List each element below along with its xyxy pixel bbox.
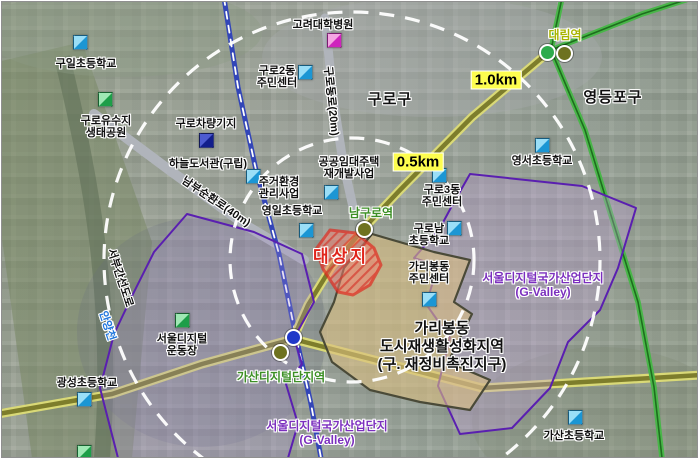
poi-marker-blue-icon [73,35,88,50]
poi-label: 구로2동주민센터 [257,65,297,89]
station-dot-line2-icon [539,44,556,61]
poi-label: 구로남초등학교 [409,223,449,247]
station-dot-line7-icon [272,344,289,361]
station-dot-line7-icon [356,221,373,238]
poi-label: 공공임대주택재개발사업 [319,156,380,180]
district-label: 구로구 [368,94,412,106]
poi-label: 고려대학병원 [293,19,354,31]
poi-label: 가산초등학교 [544,430,605,442]
poi-marker-green-icon [98,92,113,107]
station-label: 대림역 [548,29,581,41]
poi-label: 영서초등학교 [512,155,573,167]
poi-label: 광성초등학교 [57,377,118,389]
poi-marker-blue-icon [568,410,583,425]
poi-label: 하늘도서관(구립) [169,158,247,170]
poi-label: 영일초등학교 [262,205,323,217]
distance-badge: 0.5km [393,153,444,172]
station-label: 남구로역 [349,207,393,219]
zone-label-garibong-renewal: 가리봉동도시재생활성화지역(구. 재정비촉진지구) [378,320,507,374]
poi-marker-green-icon [175,313,190,328]
satellite-map-canvas: 구일초등학교구로유수지생태공원구로차량기지하늘도서관(구립)고려대학병원구로2동… [1,1,698,458]
poi-marker-navy-icon [199,133,214,148]
poi-marker-blue-icon [535,138,550,153]
zone-label-gvalley-bottom: 서울디지털국가산업단지(G-Valley) [266,419,387,447]
poi-marker-green-icon [77,445,92,458]
poi-label: 서울디지털운동장 [157,333,208,357]
poi-label: 구로유수지생태공원 [81,115,132,139]
poi-marker-blue-icon [77,392,92,407]
poi-label: 가리봉동주민센터 [409,261,449,285]
poi-marker-blue-icon [447,221,462,236]
zone-label-gvalley-right: 서울디지털국가산업단지(G-Valley) [482,271,603,299]
poi-marker-blue-icon [298,65,313,80]
station-dot-line1-icon [285,329,302,346]
poi-label: 구일초등학교 [56,58,117,70]
district-label: 영등포구 [583,92,642,104]
poi-marker-magenta-icon [327,33,342,48]
map-screenshot: { "colors": { "marker_blue_light":"#9ade… [0,0,699,465]
station-label: 가산디지털단지역 [237,371,325,383]
poi-marker-blue-icon [422,292,437,307]
poi-label: 구로3동주민센터 [422,184,462,208]
distance-badge: 1.0km [471,71,522,90]
poi-marker-blue-icon [299,223,314,238]
northwest-patch [2,2,262,77]
station-dot-line7-icon [556,45,573,62]
poi-label: 구로차량기지 [176,118,237,130]
target-site-label: 대상지 [313,251,369,263]
poi-marker-blue-icon [324,185,339,200]
poi-label: 주거환경관리사업 [259,176,299,200]
